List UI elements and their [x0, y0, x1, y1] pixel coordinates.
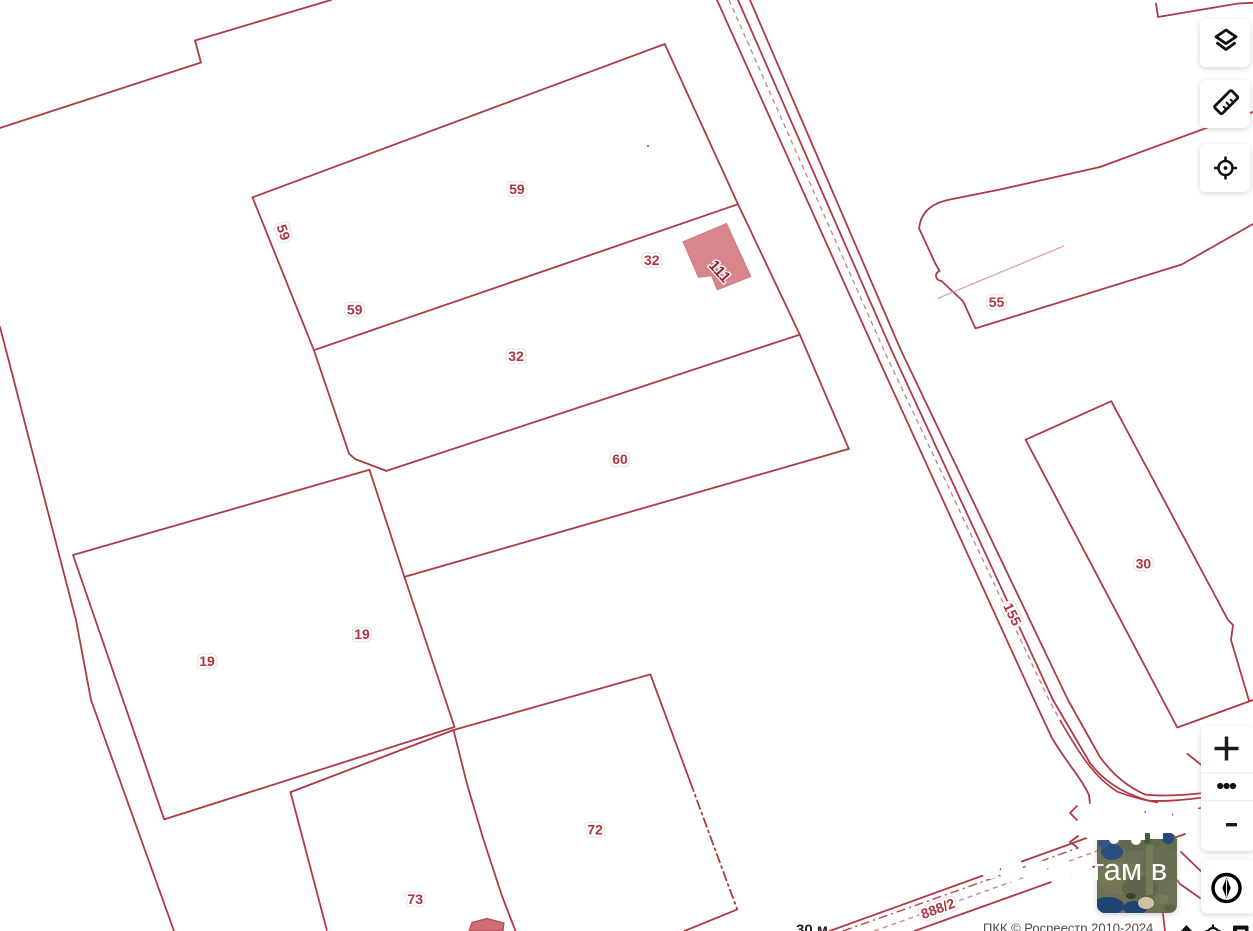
svg-text:32: 32: [644, 252, 660, 268]
svg-text:19: 19: [354, 626, 370, 642]
svg-text:59: 59: [509, 181, 525, 197]
svg-text:гам в: гам в: [1093, 852, 1167, 887]
svg-text:30 м: 30 м: [796, 922, 828, 931]
svg-text:72: 72: [587, 822, 603, 838]
svg-text:32: 32: [508, 348, 524, 364]
svg-text:30: 30: [1136, 556, 1152, 572]
svg-text:19: 19: [199, 653, 215, 669]
svg-text:ПКК © Росреестр 2010-2024: ПКК © Росреестр 2010-2024: [983, 921, 1153, 931]
svg-text:59: 59: [347, 301, 363, 317]
svg-text:73: 73: [407, 891, 423, 907]
svg-text:60: 60: [612, 451, 628, 467]
svg-text:55: 55: [989, 294, 1005, 310]
svg-text:155: 155: [1000, 600, 1025, 628]
svg-text:59: 59: [274, 222, 294, 242]
